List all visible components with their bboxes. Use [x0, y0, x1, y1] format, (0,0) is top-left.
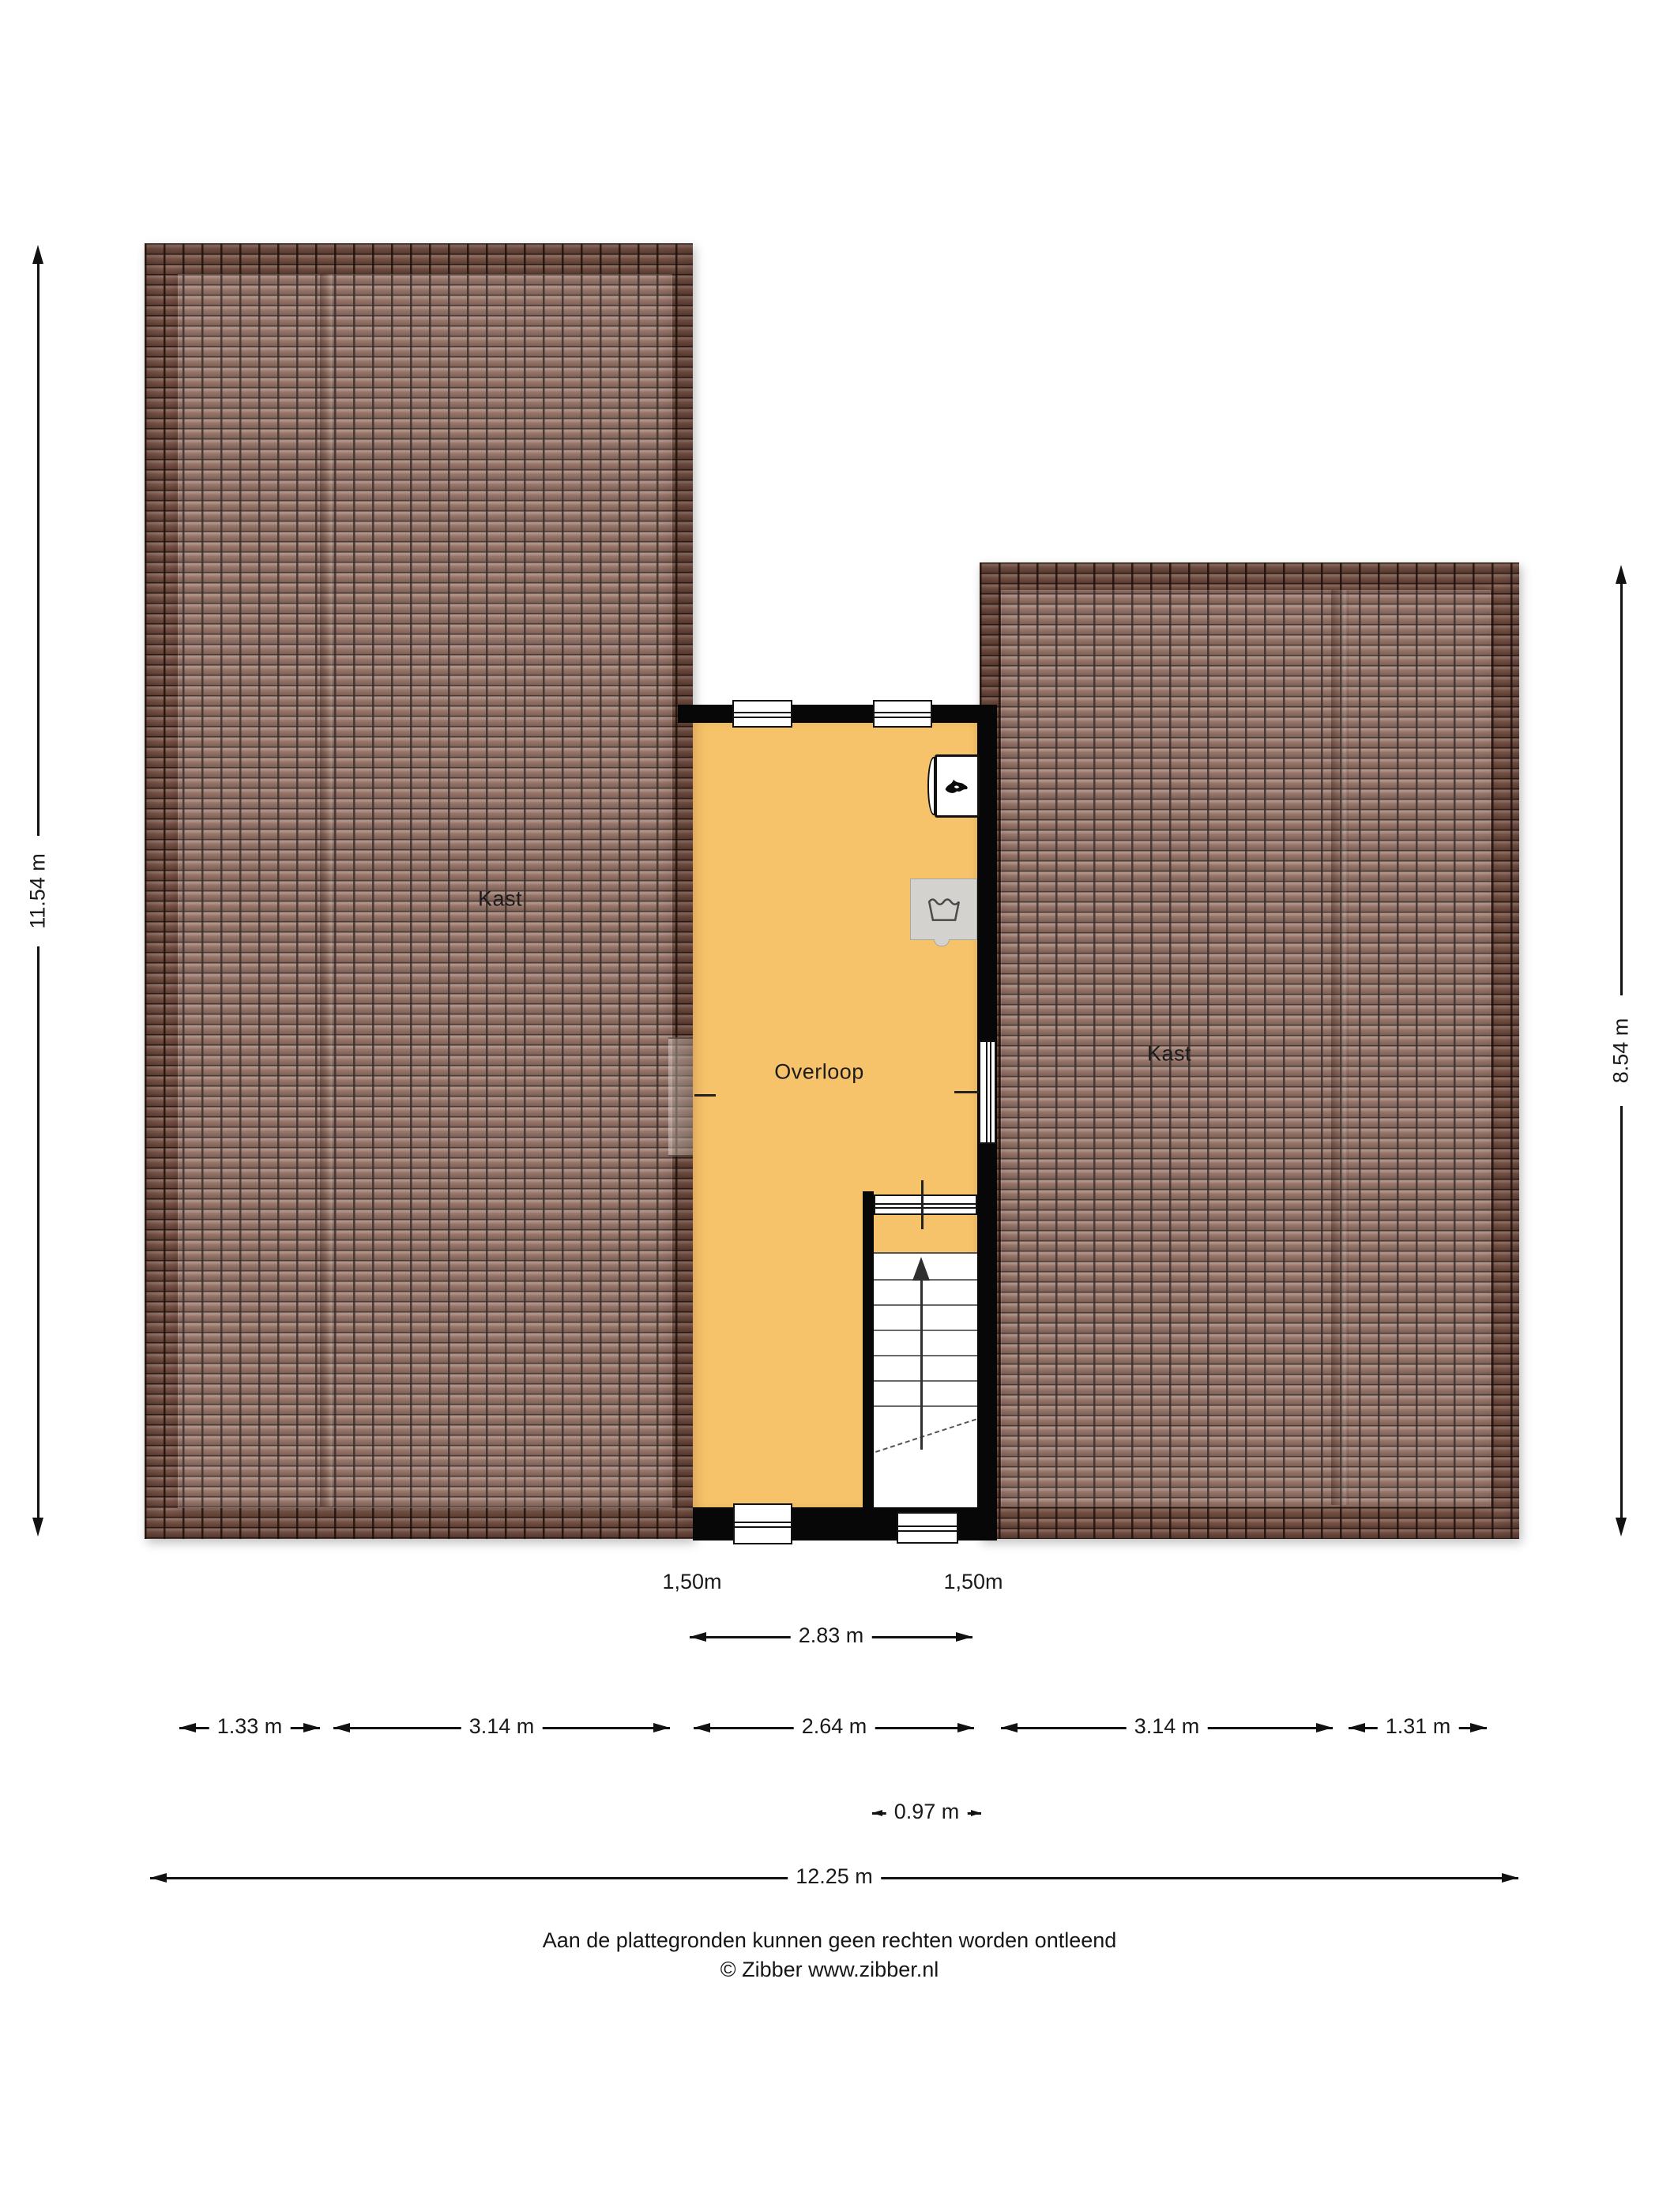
stair-direction-line [920, 1281, 923, 1450]
arrow-up-icon [912, 1257, 930, 1281]
window-bottom-stairwell [897, 1512, 958, 1544]
window-pane-line [898, 1530, 957, 1532]
arrow-left-icon [690, 1632, 706, 1642]
arrow-left-icon [1001, 1723, 1018, 1732]
room-label-left-closet: Kast [478, 887, 522, 912]
dim-label-landing-span: 2.83 m [791, 1623, 872, 1648]
roof-right-closet: Kast [980, 562, 1519, 1539]
arrow-up-icon [1616, 565, 1627, 584]
stair-tread [874, 1304, 977, 1306]
arrow-down-icon [32, 1518, 43, 1537]
window-pane-line [898, 1525, 957, 1527]
window-pane-line [875, 1207, 976, 1209]
window-top-right [873, 700, 932, 728]
room-label-right-closet: Kast [1147, 1042, 1191, 1066]
dim-label-stair-width: 0.97 m [886, 1800, 968, 1824]
door-left-tick [694, 1094, 716, 1097]
ventilation-unit [935, 754, 980, 818]
arrow-left-icon [872, 1810, 882, 1816]
wash-tub-icon [926, 895, 962, 924]
window-pane-line [986, 1042, 987, 1142]
window-pane-line [875, 1203, 976, 1205]
arrow-right-icon [1502, 1873, 1518, 1883]
dim-label-1: 1.33 m [209, 1714, 291, 1739]
arrow-right-icon [653, 1723, 670, 1732]
door-right-closet [979, 1040, 996, 1144]
arrow-left-icon [333, 1723, 350, 1732]
footer-disclaimer: Aan de plattegronden kunnen geen rechten… [0, 1926, 1659, 1955]
footer: Aan de plattegronden kunnen geen rechten… [0, 1926, 1659, 1984]
stair-tread [874, 1330, 977, 1331]
dim-label-right-height: 8.54 m [1609, 1012, 1634, 1090]
window-top-left [732, 700, 792, 728]
roof-left-ridge-seam [320, 274, 334, 1507]
dim-line [37, 946, 39, 1518]
floorplan-canvas: 11.54 m 8.54 m Kast Kast [0, 0, 1659, 2212]
stairwell-partition-window [874, 1194, 977, 1215]
washing-machine [910, 878, 977, 940]
dim-label-window-left: 1,50m [654, 1570, 729, 1594]
dim-label-3: 2.64 m [794, 1714, 875, 1739]
stair-headroom-dash-line [875, 1419, 976, 1453]
window-pane-line [990, 1042, 991, 1142]
dim-label-4: 3.14 m [1127, 1714, 1208, 1739]
dim-line [37, 263, 39, 836]
partition-center-tick [921, 1180, 924, 1229]
dim-line [1620, 1106, 1623, 1518]
dim-label-2: 3.14 m [461, 1714, 543, 1739]
wall-stairwell-west [863, 1191, 874, 1540]
window-bottom-left [733, 1503, 792, 1544]
window-pane-line [734, 717, 791, 718]
dim-line [1620, 583, 1623, 995]
arrow-left-icon [150, 1873, 167, 1883]
dim-label-window-right: 1,50m [935, 1570, 1010, 1594]
dim-label-5: 1.31 m [1378, 1714, 1459, 1739]
stair-tread [874, 1355, 977, 1356]
footer-copyright: © Zibber www.zibber.nl [0, 1955, 1659, 1984]
arrow-left-icon [179, 1723, 196, 1732]
stairwell [874, 1252, 977, 1507]
roof-right-inner-panel [1001, 590, 1491, 1507]
roof-left-inner-panel [178, 274, 672, 1508]
flame-icon [944, 775, 971, 797]
arrow-right-icon [303, 1723, 320, 1732]
closet-left-door-opening [668, 1037, 693, 1157]
dim-label-total-width: 12.25 m [788, 1864, 881, 1889]
arrow-down-icon [1616, 1518, 1627, 1537]
door-right-tick [954, 1091, 979, 1093]
dim-label-left-height: 11.54 m [26, 847, 51, 935]
arrow-up-icon [32, 245, 43, 264]
arrow-right-icon [1470, 1723, 1487, 1732]
wall-top [678, 705, 997, 723]
roof-right-ridge-seam [1331, 590, 1349, 1505]
window-pane-line [735, 1522, 791, 1523]
stair-tread [874, 1380, 977, 1382]
roof-left-closet: Kast [145, 243, 693, 1539]
room-label-landing: Overloop [774, 1060, 864, 1085]
window-pane-line [734, 712, 791, 713]
stair-tread [874, 1405, 977, 1407]
arrow-right-icon [971, 1810, 981, 1816]
arrow-right-icon [1316, 1723, 1333, 1732]
window-pane-line [875, 712, 931, 713]
window-pane-line [735, 1526, 791, 1528]
arrow-right-icon [956, 1632, 972, 1642]
window-pane-line [875, 717, 931, 718]
arrow-right-icon [957, 1723, 974, 1732]
arrow-left-icon [694, 1723, 710, 1732]
arrow-left-icon [1349, 1723, 1365, 1732]
